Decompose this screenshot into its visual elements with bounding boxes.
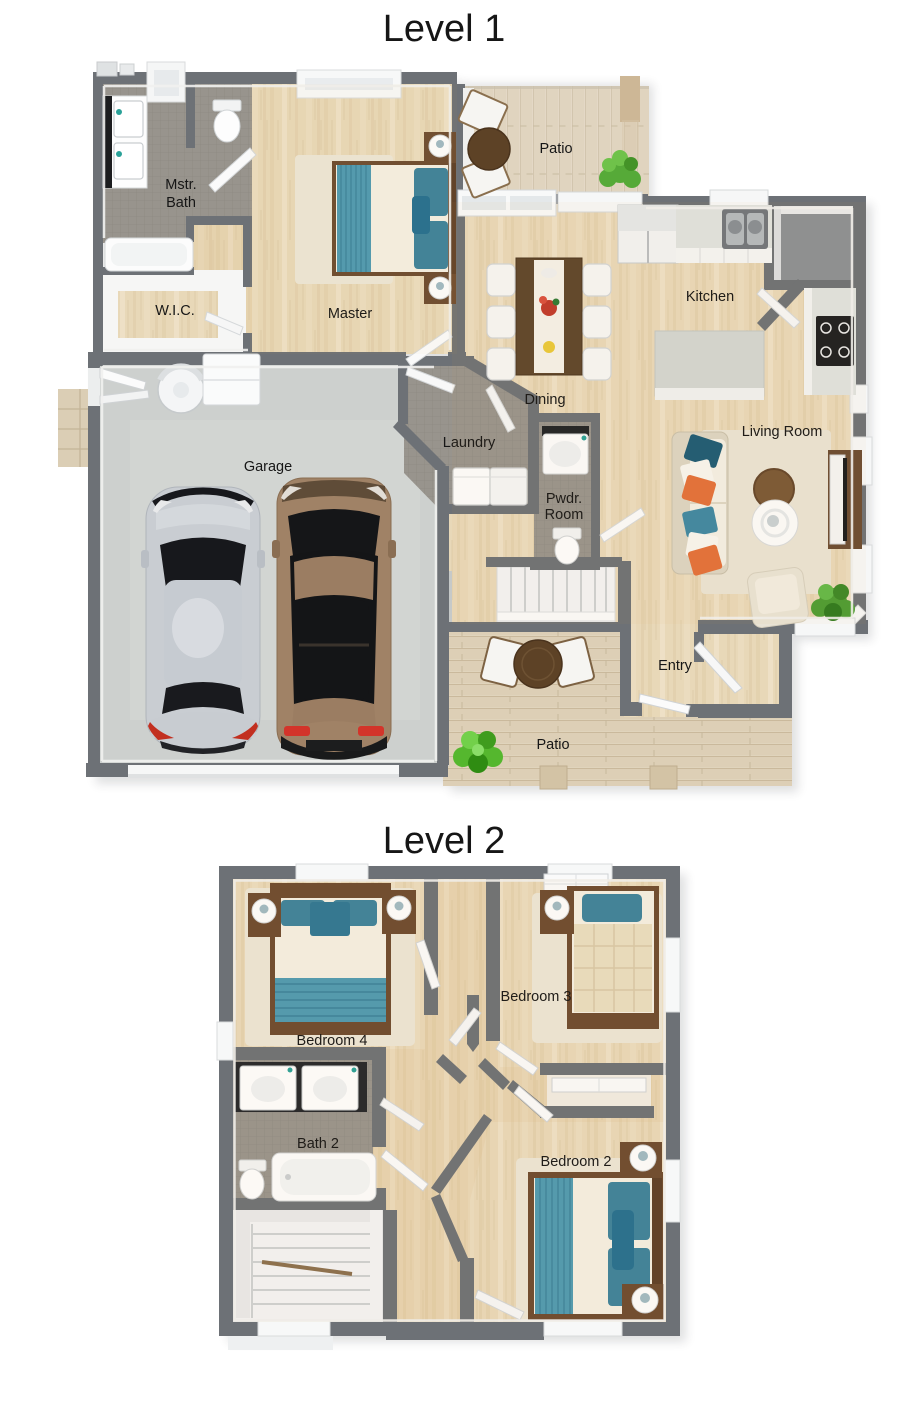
svg-text:Patio: Patio xyxy=(536,737,569,753)
svg-text:Garage: Garage xyxy=(244,459,292,475)
svg-text:Mstr.: Mstr. xyxy=(165,177,196,193)
svg-text:Level 2: Level 2 xyxy=(383,820,506,862)
svg-text:Level 1: Level 1 xyxy=(383,8,506,50)
svg-text:Bath: Bath xyxy=(166,195,196,211)
svg-text:Entry: Entry xyxy=(658,658,693,674)
svg-text:Patio: Patio xyxy=(539,141,572,157)
svg-text:W.I.C.: W.I.C. xyxy=(155,303,194,319)
